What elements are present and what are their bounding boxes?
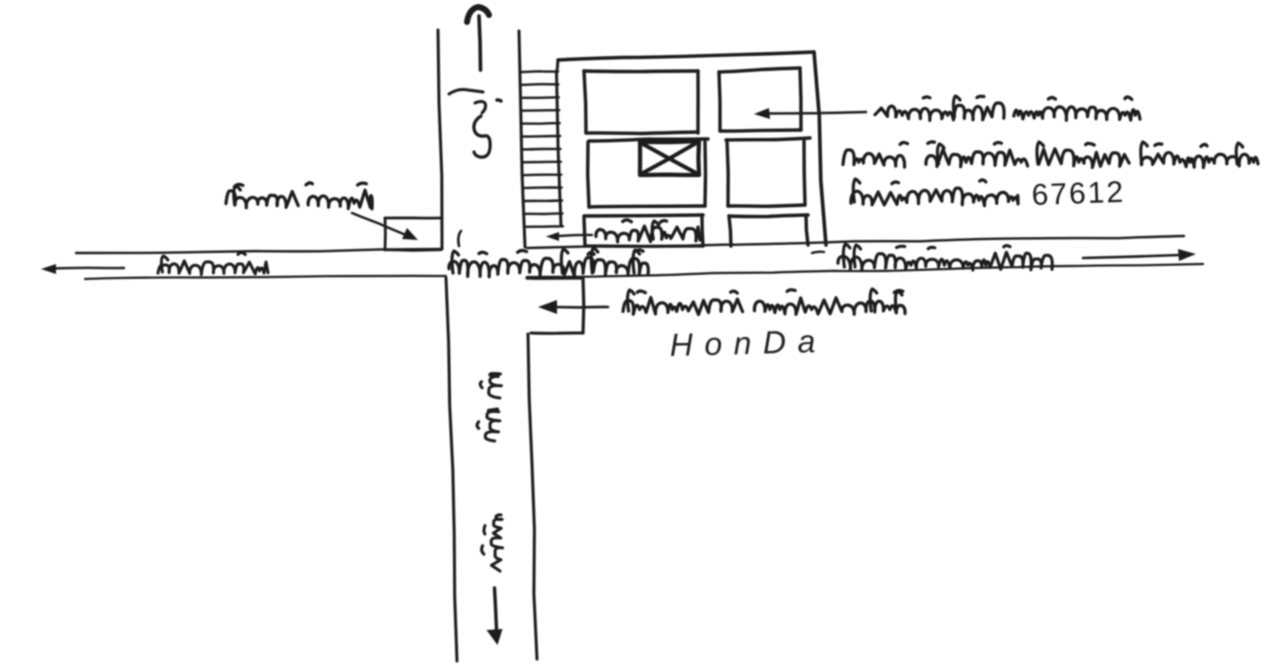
svg-text:67612: 67612 [1031,176,1126,212]
svg-text:HonDa: HonDa [669,323,827,363]
